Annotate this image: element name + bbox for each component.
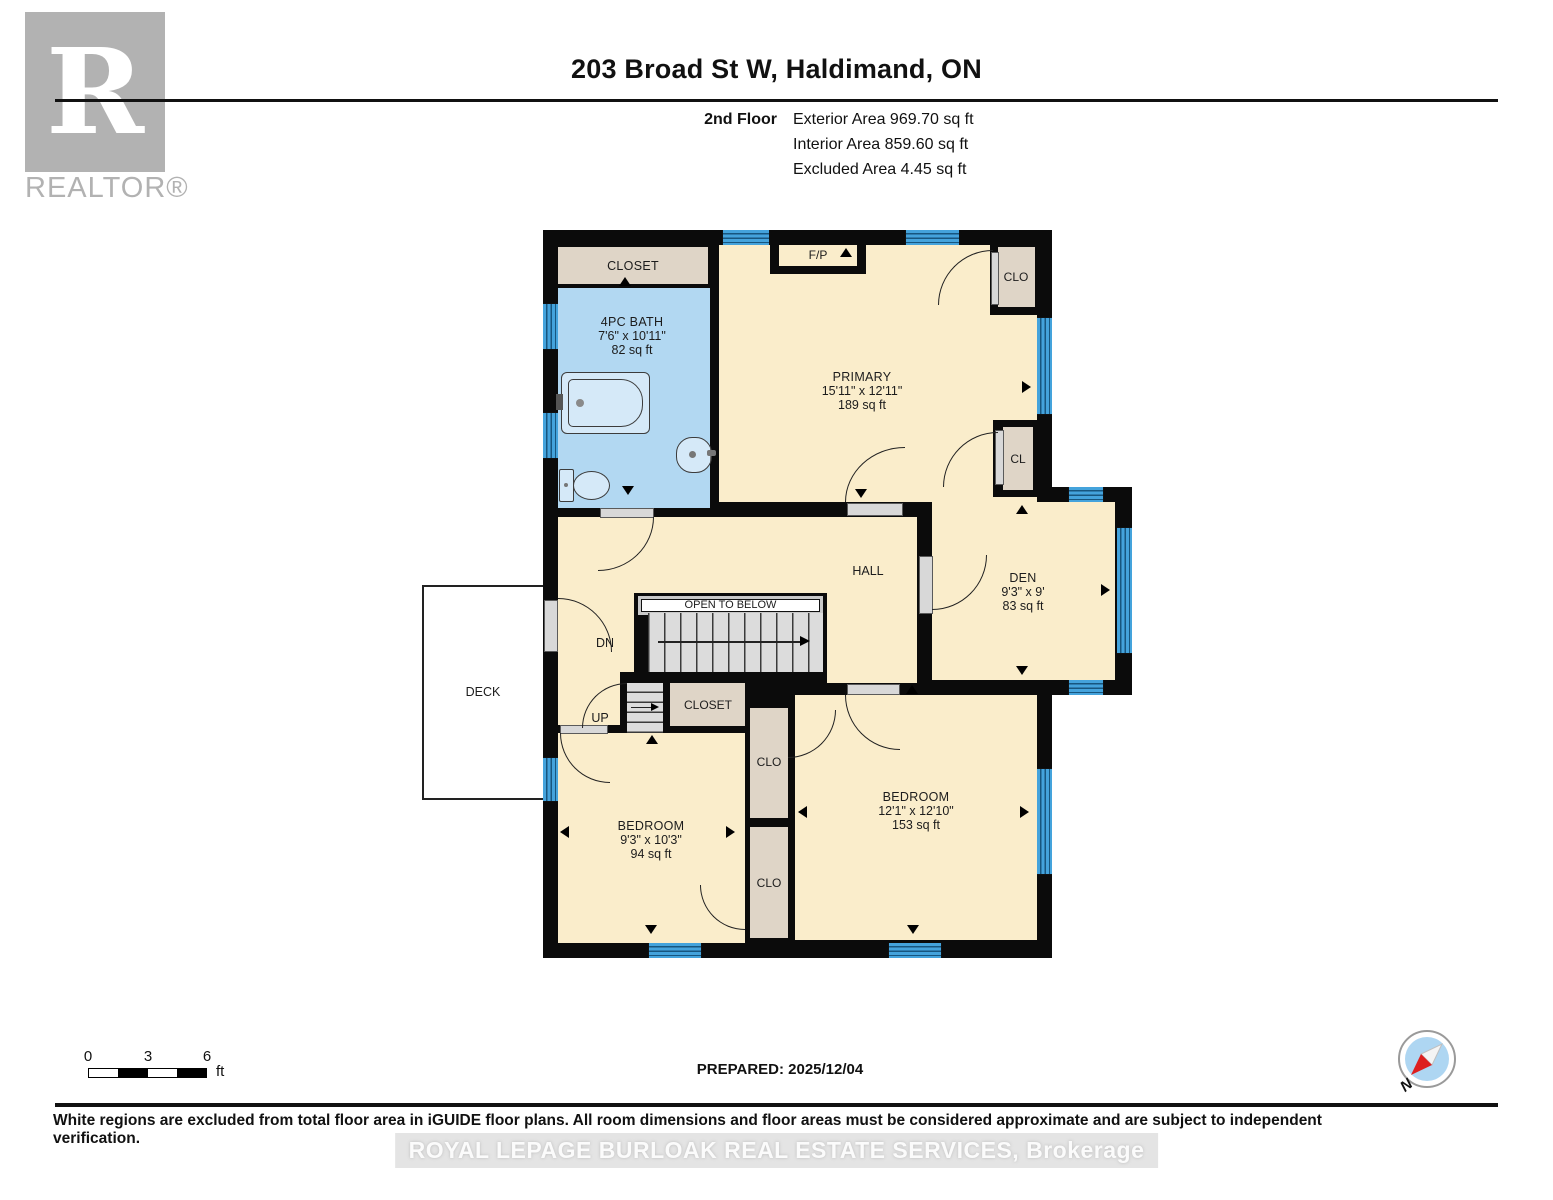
direction-arrow-icon [1020, 806, 1029, 818]
scale-tick-3: 3 [140, 1048, 156, 1065]
bathtub-faucet-icon [556, 394, 563, 410]
window-top-2 [905, 230, 960, 245]
header-divider [55, 99, 1498, 102]
direction-arrow-icon [560, 826, 569, 838]
bedroom-large-label: BEDROOM 12'1" x 12'10" 153 sq ft [826, 790, 1006, 832]
direction-arrow-icon [1016, 505, 1028, 514]
brokerage-watermark: ROYAL LEPAGE BURLOAK REAL ESTATE SERVICE… [395, 1133, 1159, 1168]
direction-arrow-icon [906, 685, 918, 694]
clo-upper-label: CLO [744, 755, 794, 769]
cl-label: CL [998, 452, 1038, 466]
bedroom-large-door [847, 684, 900, 695]
direction-arrow-icon [1101, 584, 1110, 596]
scale-tick-0: 0 [80, 1048, 96, 1065]
stairs-down-label: DN [580, 636, 630, 650]
scale-unit: ft [216, 1063, 224, 1080]
realtor-logo-text: REALTOR® [25, 172, 225, 205]
sink-drain [689, 451, 696, 458]
page-title: 203 Broad St W, Haldimand, ON [0, 54, 1553, 85]
stairs-down [648, 613, 823, 672]
deck-door [544, 600, 558, 652]
window-bedroom-small [543, 757, 558, 802]
sink-faucet-icon [707, 450, 716, 456]
stairs-up-label: UP [580, 711, 620, 725]
interior-area: Interior Area 859.60 sq ft [793, 136, 1073, 154]
direction-arrow-icon [622, 486, 634, 495]
bathtub-drain [576, 399, 584, 407]
window-bedroom-large [1037, 768, 1052, 875]
bedroom-small-label: BEDROOM 9'3" x 10'3" 94 sq ft [576, 819, 726, 861]
floor-label: 2nd Floor [603, 111, 777, 129]
floorplan-page: R REALTOR® 203 Broad St W, Haldimand, ON… [0, 0, 1553, 1200]
window-bottom-2 [888, 943, 942, 958]
realtor-logo: R [25, 12, 165, 172]
stairs-down-arrow-line [658, 641, 804, 643]
direction-arrow-icon [646, 735, 658, 744]
toilet-bowl-icon [573, 471, 610, 500]
window-primary [1037, 317, 1052, 415]
exterior-area: Exterior Area 969.70 sq ft [793, 111, 1073, 129]
clo-lower-label: CLO [744, 876, 794, 890]
deck-label: DECK [433, 685, 533, 699]
direction-arrow-icon [907, 925, 919, 934]
window-den-top [1068, 487, 1104, 502]
direction-arrow-icon [1016, 666, 1028, 675]
stairs-up-arrow-line [631, 707, 653, 708]
primary-door [847, 503, 903, 516]
direction-arrow-icon [645, 925, 657, 934]
window-den-bottom [1068, 680, 1104, 695]
window-bath-1 [543, 303, 558, 350]
closet-top-label: CLOSET [563, 259, 703, 273]
excluded-area: Excluded Area 4.45 sq ft [793, 161, 1073, 179]
prepared-date: PREPARED: 2025/12/04 [640, 1061, 920, 1078]
closet-mid-label: CLOSET [663, 698, 753, 712]
direction-arrow-icon [619, 277, 631, 286]
scale-tick-6: 6 [199, 1048, 215, 1065]
window-bottom-1 [648, 943, 702, 958]
bath-label: 4PC BATH 7'6" x 10'11" 82 sq ft [557, 315, 707, 357]
window-bath-2 [543, 412, 558, 459]
realtor-logo-r-icon: R [46, 33, 144, 151]
hall-room-ext [823, 672, 917, 683]
hall-label: HALL [818, 564, 918, 578]
direction-arrow-icon [1022, 381, 1031, 393]
compass-icon: N [1396, 1028, 1462, 1094]
direction-arrow-icon [855, 489, 867, 498]
stairs-up-arrow-icon [651, 703, 659, 711]
direction-arrow-icon [798, 806, 807, 818]
footer-divider [55, 1103, 1498, 1107]
direction-arrow-icon [726, 826, 735, 838]
open-to-below-label: OPEN TO BELOW [641, 600, 820, 611]
den-door [919, 556, 933, 614]
toilet-button [564, 483, 568, 487]
window-top-1 [722, 230, 770, 245]
fireplace-label: F/P [779, 248, 857, 262]
window-den-right [1117, 527, 1132, 654]
stairs-down-arrow-icon [800, 636, 810, 646]
den-label: DEN 9'3" x 9' 83 sq ft [953, 571, 1093, 613]
clo-tr-label: CLO [996, 270, 1036, 284]
primary-label: PRIMARY 15'11" x 12'11" 189 sq ft [762, 370, 962, 412]
scale-bar [88, 1068, 207, 1078]
